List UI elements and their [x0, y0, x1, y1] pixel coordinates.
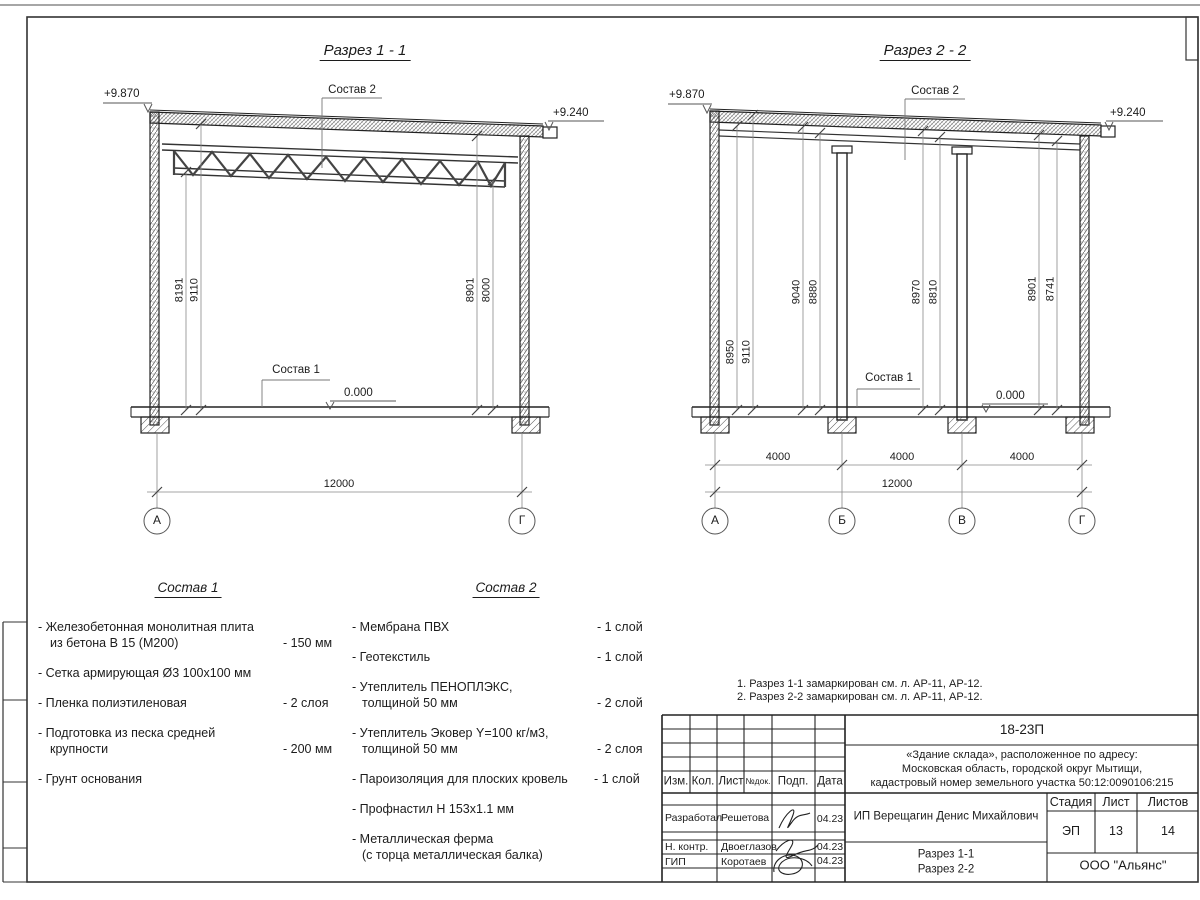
elevation-mark: +9.240: [553, 107, 589, 120]
title-block-address-line: «Здание склада», расположенное по адресу…: [906, 749, 1137, 763]
list-item: крупности: [50, 742, 108, 756]
date-value: 04.23: [817, 841, 843, 853]
list-item-value: - 2 слоя: [597, 742, 642, 756]
company-name: ООО "Альянс": [1080, 859, 1167, 874]
dimension-label: 9110: [189, 278, 202, 302]
axis-bubble: Г: [1079, 514, 1086, 528]
signature: [774, 810, 818, 874]
section-2-title: Разрез 2 - 2: [880, 42, 971, 61]
list-item-value: - 2 слой: [597, 696, 643, 710]
person-name: Коротаев: [721, 856, 766, 868]
sheet-number: 13: [1109, 824, 1123, 838]
list-item: - Подготовка из песка средней: [38, 726, 215, 740]
axis-bubble: А: [711, 514, 719, 528]
sheet-title-line: Разрез 1-1: [918, 848, 974, 861]
dimension-label: 8810: [928, 280, 941, 304]
column-header: Подп.: [778, 775, 809, 788]
title-block-document-code: 18-23П: [1000, 722, 1044, 738]
composition-1-title: Состав 1: [155, 580, 222, 598]
dimension-label: 8901: [1027, 277, 1040, 301]
title-block-address-line: кадастровый номер земельного участка 50:…: [870, 777, 1173, 791]
list-item: из бетона В 15 (М200): [50, 636, 178, 650]
dimension-label: 12000: [324, 478, 355, 491]
title-block-customer: ИП Верещагин Денис Михайлович: [854, 810, 1039, 823]
list-item: - Сетка армирующая Ø3 100х100 мм: [38, 666, 251, 680]
person-name: Двоеглазов: [721, 841, 777, 853]
role-label: Н. контр.: [665, 841, 708, 853]
stage-value: ЭП: [1062, 824, 1080, 838]
dimension-label: 4000: [766, 451, 790, 464]
elevation-mark: 0.000: [996, 390, 1025, 403]
floor-composition-label: Состав 1: [272, 364, 320, 377]
dimension-label: 8000: [481, 278, 494, 302]
axis-bubble: Г: [519, 514, 526, 528]
note-line: 1. Разрез 1-1 замаркирован см. л. АР-11,…: [737, 678, 983, 691]
roof-composition-label: Состав 2: [911, 85, 959, 98]
section-1-drawing: [103, 98, 604, 534]
list-item: толщиной 50 мм: [362, 742, 458, 756]
dimension-label: 4000: [1010, 451, 1034, 464]
elevation-mark: 0.000: [344, 387, 373, 400]
composition-2-title: Состав 2: [473, 580, 540, 598]
list-item: - Утеплитель ПЕНОПЛЭКС,: [352, 680, 512, 694]
list-item: (с торца металлическая балка): [362, 848, 543, 862]
column-header: Изм.: [664, 775, 689, 788]
dimension-label: 8191: [174, 278, 187, 302]
dimension-label: 12000: [882, 478, 913, 491]
date-value: 04.23: [817, 855, 843, 867]
column-header: Дата: [817, 775, 842, 788]
list-item-value: - 150 мм: [283, 636, 332, 650]
list-item: - Пленка полиэтиленовая: [38, 696, 187, 710]
list-item: - Профнастил Н 153х1.1 мм: [352, 802, 514, 816]
list-item: - Железобетонная монолитная плита: [38, 620, 254, 634]
list-item: - Геотекстиль: [352, 650, 430, 664]
list-item: - Мембрана ПВХ: [352, 620, 449, 634]
floor-composition-label: Состав 1: [865, 372, 913, 385]
role-label: ГИП: [665, 856, 686, 868]
dimension-label: 4000: [890, 451, 914, 464]
elevation-mark: +9.240: [1110, 107, 1146, 120]
column-header: Лист: [719, 775, 744, 788]
dimension-label: 8880: [808, 280, 821, 304]
date-value: 04.23: [817, 813, 843, 825]
section-2-drawing: [668, 99, 1163, 534]
axis-bubble: А: [153, 514, 161, 528]
column-header: Кол.: [692, 775, 715, 788]
list-item: - Металлическая ферма: [352, 832, 493, 846]
section-1-title: Разрез 1 - 1: [320, 42, 411, 61]
sheet-header: Лист: [1102, 795, 1129, 809]
role-label: Разработал: [665, 812, 722, 824]
sheets-total: 14: [1161, 824, 1175, 838]
roof-composition-label: Состав 2: [328, 84, 376, 97]
axis-bubble: Б: [838, 514, 846, 528]
list-item: толщиной 50 мм: [362, 696, 458, 710]
dimension-label: 9040: [791, 280, 804, 304]
column-header: №док.: [746, 777, 771, 787]
dimension-label: 8970: [911, 280, 924, 304]
list-item: - Грунт основания: [38, 772, 142, 786]
sheet-title-line: Разрез 2-2: [918, 863, 974, 876]
list-item-value: - 2 слоя: [283, 696, 328, 710]
axis-bubble: В: [958, 514, 966, 528]
sheets-total-header: Листов: [1148, 795, 1189, 809]
dimension-label: 8901: [465, 278, 478, 302]
stage-header: Стадия: [1050, 795, 1093, 809]
list-item-value: - 200 мм: [283, 742, 332, 756]
dimension-label: 8950: [725, 340, 738, 364]
list-item: - Пароизоляция для плоских кровель: [352, 772, 568, 786]
title-block-address-line: Московская область, городской округ Мыти…: [902, 763, 1142, 777]
elevation-mark: +9.870: [104, 88, 140, 101]
list-item-value: - 1 слой: [594, 772, 640, 786]
person-name: Решетова: [721, 812, 769, 824]
list-item-value: - 1 слой: [597, 650, 643, 664]
elevation-mark: +9.870: [669, 89, 705, 102]
drawing-sheet: Разрез 1 - 1 Разрез 2 - 2 +9.870 Состав …: [0, 0, 1200, 900]
list-item-value: - 1 слой: [597, 620, 643, 634]
dimension-label: 9110: [741, 340, 754, 364]
list-item: - Утеплитель Эковер Y=100 кг/м3,: [352, 726, 548, 740]
dimension-label: 8741: [1045, 277, 1058, 301]
note-line: 2. Разрез 2-2 замаркирован см. л. АР-11,…: [737, 691, 983, 704]
